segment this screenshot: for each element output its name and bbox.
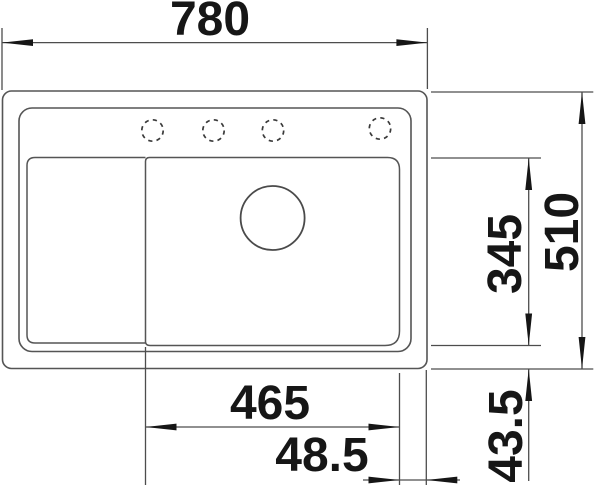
svg-text:510: 510 [536,192,589,272]
svg-text:465: 465 [230,377,310,430]
svg-text:780: 780 [170,0,250,46]
svg-text:345: 345 [479,214,532,294]
svg-text:48.5: 48.5 [275,429,368,482]
svg-text:43.5: 43.5 [480,389,533,482]
